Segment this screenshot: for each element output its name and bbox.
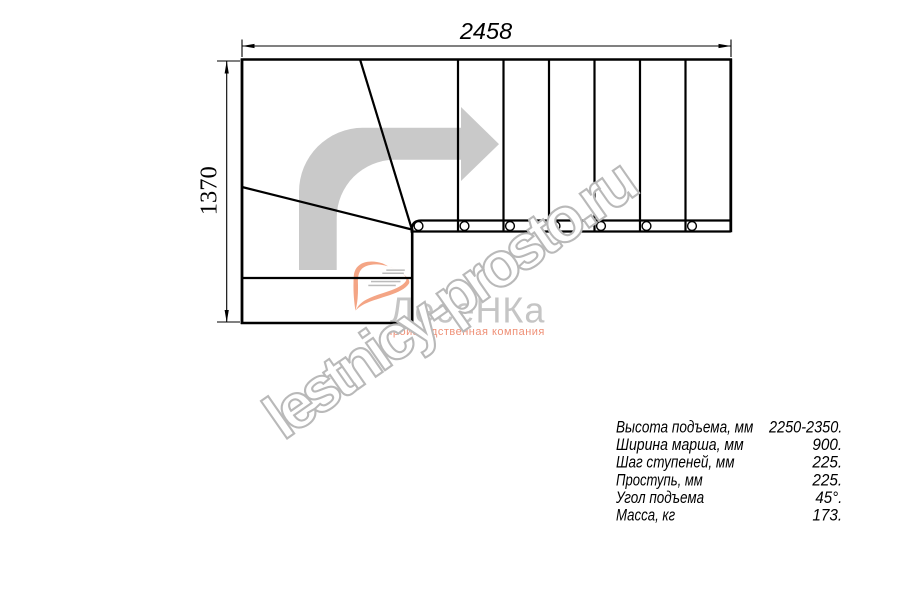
svg-text:Проступь, мм: Проступь, мм bbox=[616, 470, 703, 489]
svg-text:1370: 1370 bbox=[196, 166, 223, 215]
svg-text:45°.: 45°. bbox=[815, 488, 842, 507]
svg-text:Высота подъема, мм: Высота подъема, мм bbox=[616, 418, 754, 437]
svg-text:Масса, кг: Масса, кг bbox=[616, 506, 675, 525]
svg-text:173.: 173. bbox=[812, 506, 842, 525]
svg-text:225.: 225. bbox=[811, 453, 842, 472]
svg-text:Угол подъема: Угол подъема bbox=[615, 488, 704, 507]
svg-text:225.: 225. bbox=[811, 470, 842, 489]
svg-text:Шаг ступеней, мм: Шаг ступеней, мм bbox=[616, 453, 735, 472]
svg-text:Ширина марша, мм: Ширина марша, мм bbox=[616, 435, 744, 454]
svg-text:900.: 900. bbox=[812, 435, 842, 454]
svg-text:2250-2350.: 2250-2350. bbox=[768, 418, 842, 437]
svg-text:2458: 2458 bbox=[459, 18, 512, 44]
